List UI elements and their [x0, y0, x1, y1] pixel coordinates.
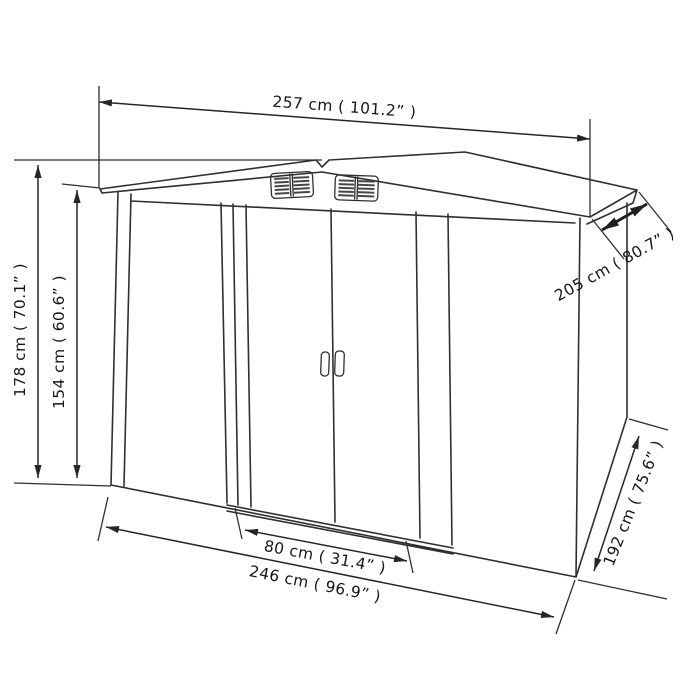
vent-louvers [338, 180, 374, 196]
dimension-line [106, 527, 554, 617]
diagram-canvas: 257 cm ( 101.2” ) 178 cm ( 70.1” ) 154 c… [0, 0, 685, 685]
door-handle-right [335, 351, 345, 376]
shed-dimension-diagram: 257 cm ( 101.2” ) 178 cm ( 70.1” ) 154 c… [0, 0, 685, 685]
shed-structure [100, 152, 637, 577]
dim-label-base-depth: 192 cm ( 75.6” ) [600, 438, 667, 569]
dimension-roof-width: 257 cm ( 101.2” ) [99, 86, 590, 216]
dimension-wall-height: 154 cm ( 60.6” ) [50, 184, 100, 478]
roof-vent-left-icon [270, 171, 313, 198]
shed-front-wall [111, 192, 580, 577]
extension-lines [62, 184, 100, 188]
roof-vent-right-icon [335, 175, 379, 201]
dim-label-total-height: 178 cm ( 70.1” ) [11, 263, 29, 397]
dim-label-roof-depth: 205 cm ( 80.7” ) [552, 224, 678, 305]
dim-label-wall-height: 154 cm ( 60.6” ) [50, 275, 68, 409]
door-handle-left [321, 352, 330, 376]
vent-divider [355, 176, 358, 199]
vent-divider [290, 173, 294, 196]
dimension-line [602, 204, 647, 230]
dimension-base-depth: 192 cm ( 75.6” ) [578, 419, 668, 599]
dimension-roof-depth: 205 cm ( 80.7” ) [552, 192, 678, 305]
